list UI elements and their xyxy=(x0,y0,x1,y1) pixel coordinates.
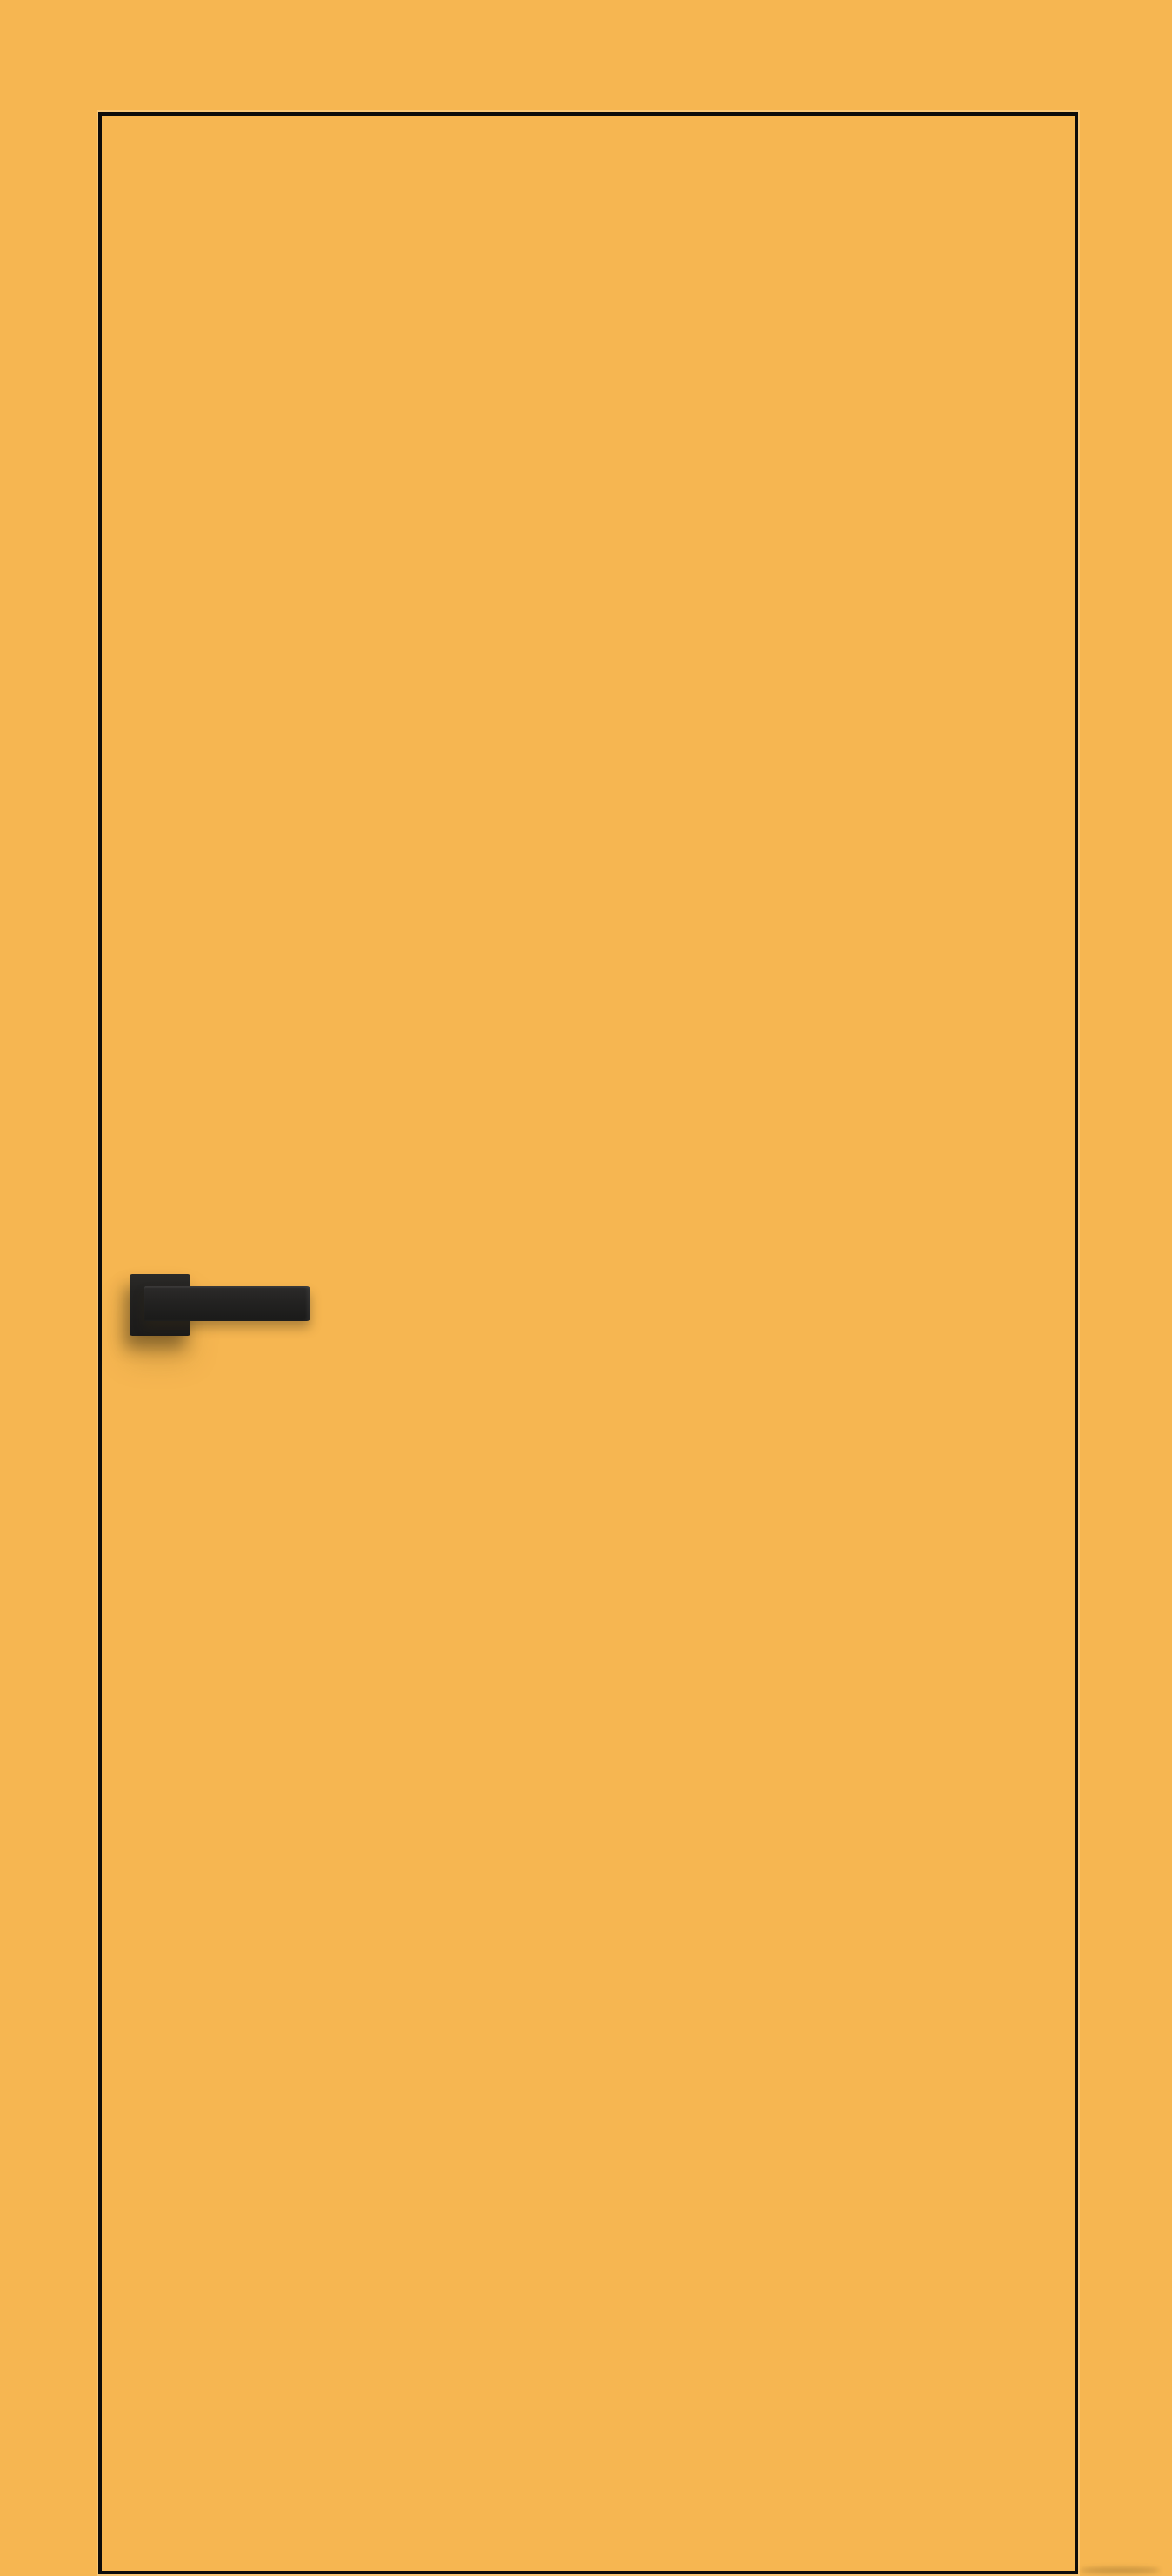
door-bottom-shadow xyxy=(1080,2567,1160,2573)
door-product-scene xyxy=(0,0,1172,2576)
door-leaf xyxy=(98,112,1078,2574)
